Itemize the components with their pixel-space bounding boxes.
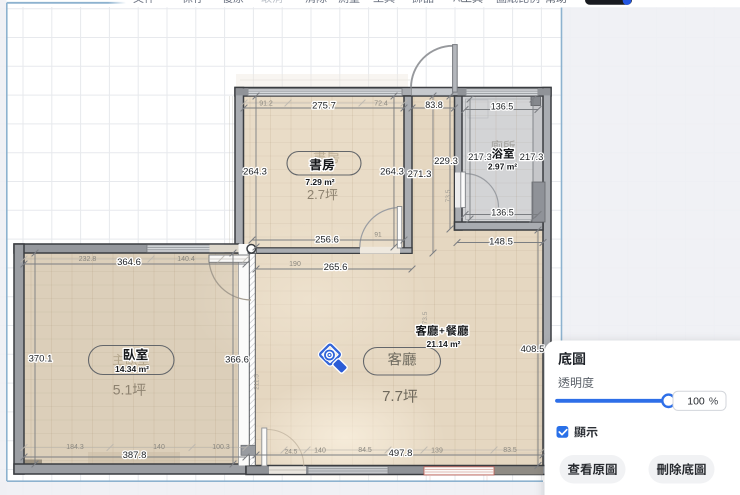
svg-text:366.6: 366.6 — [225, 354, 249, 365]
svg-text:387.8: 387.8 — [123, 450, 147, 461]
svg-text:84.5: 84.5 — [358, 447, 372, 454]
svg-text:140: 140 — [153, 444, 165, 451]
svg-text:190: 190 — [289, 261, 301, 268]
svg-text:139: 139 — [431, 447, 443, 454]
svg-text:100.3: 100.3 — [212, 444, 230, 451]
svg-text:136.5: 136.5 — [491, 102, 514, 112]
svg-text:256.6: 256.6 — [315, 234, 339, 245]
svg-text:7.7: 7.7 — [382, 388, 403, 405]
svg-text:5.1: 5.1 — [113, 381, 133, 397]
svg-text:2.97 m²: 2.97 m² — [488, 162, 517, 172]
svg-text:497.8: 497.8 — [389, 448, 413, 459]
svg-text:211.5: 211.5 — [254, 374, 261, 390]
svg-text:232.8: 232.8 — [79, 256, 97, 263]
svg-text:217.3: 217.3 — [520, 152, 544, 163]
svg-text:140.4: 140.4 — [177, 256, 195, 263]
svg-text:275.7: 275.7 — [312, 100, 336, 111]
svg-text:AI: AI — [453, 0, 462, 4]
svg-text:264.3: 264.3 — [380, 166, 404, 177]
svg-text:7.29 m²: 7.29 m² — [305, 177, 334, 187]
svg-text:21.14 m²: 21.14 m² — [426, 339, 460, 349]
svg-text:14.34 m²: 14.34 m² — [115, 364, 149, 374]
svg-text:91.2: 91.2 — [259, 101, 273, 108]
svg-text:148.5: 148.5 — [489, 236, 513, 247]
svg-text:72.4: 72.4 — [374, 101, 388, 108]
svg-text:264.3: 264.3 — [243, 166, 267, 177]
svg-text:229.3: 229.3 — [434, 156, 458, 167]
svg-text:364.6: 364.6 — [117, 257, 141, 268]
svg-text:265.6: 265.6 — [324, 262, 348, 273]
svg-text:91: 91 — [374, 231, 382, 238]
svg-text:%: % — [709, 396, 718, 408]
svg-text:136.5: 136.5 — [491, 208, 514, 218]
svg-text:140: 140 — [314, 447, 326, 454]
svg-text:73.5: 73.5 — [422, 311, 429, 324]
svg-text:408.5: 408.5 — [521, 344, 545, 355]
svg-text:184.3: 184.3 — [66, 444, 84, 451]
svg-text:370.1: 370.1 — [29, 353, 53, 364]
svg-text:2.7: 2.7 — [307, 187, 325, 202]
svg-text:271.3: 271.3 — [408, 169, 432, 180]
svg-text:100: 100 — [687, 396, 705, 408]
svg-text:73.5: 73.5 — [445, 189, 452, 202]
svg-text:83.5: 83.5 — [503, 447, 517, 454]
svg-text:24.5: 24.5 — [285, 448, 298, 455]
svg-text:83.8: 83.8 — [425, 100, 443, 110]
